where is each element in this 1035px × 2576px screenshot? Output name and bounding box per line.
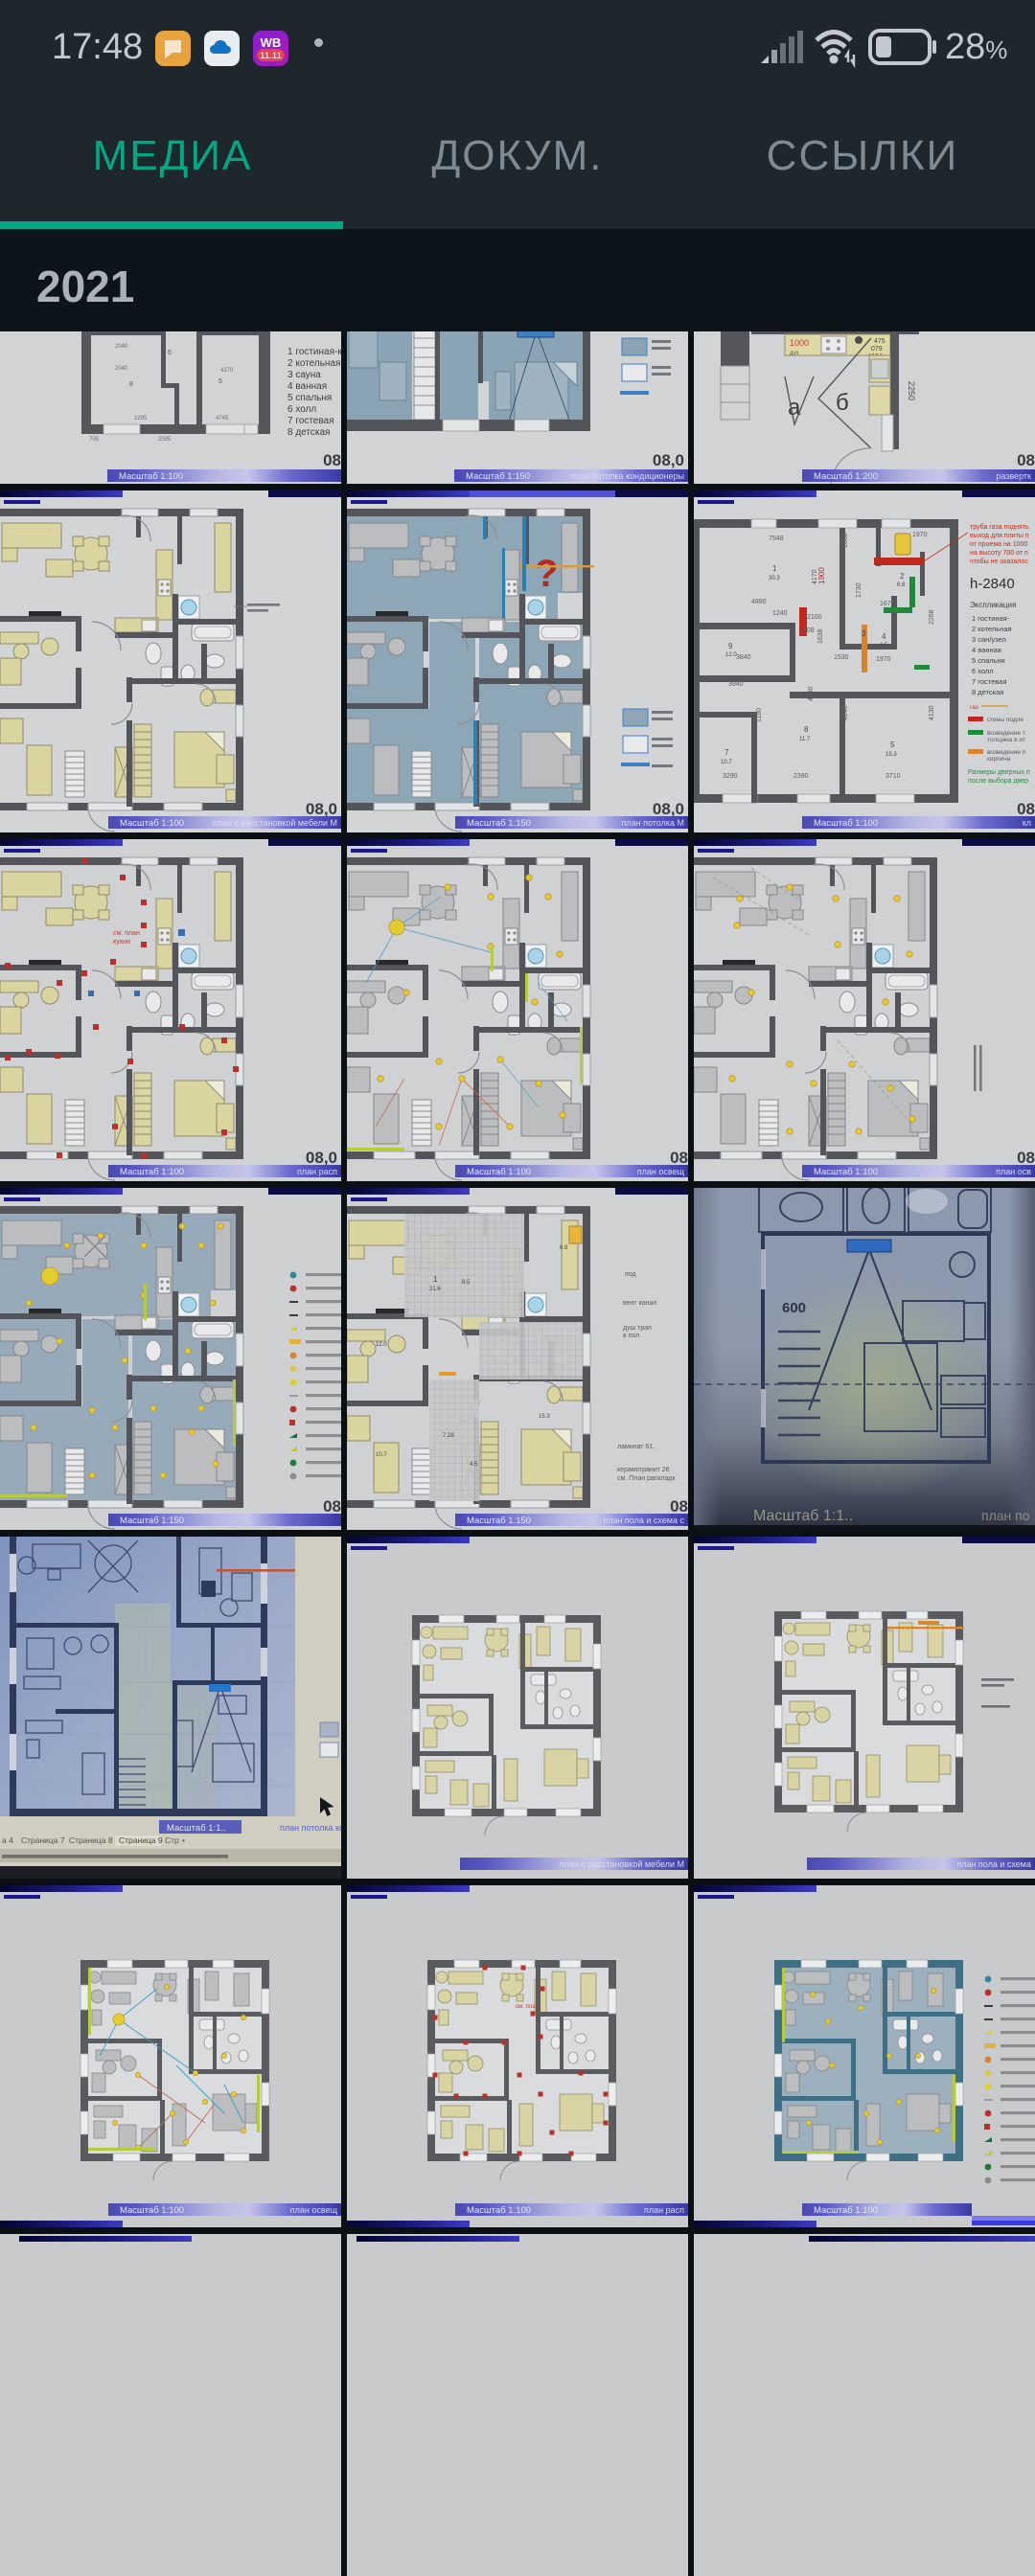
svg-text:1 гостиная-: 1 гостиная-: [972, 614, 1010, 623]
svg-text:на высоту 700 от п: на высоту 700 от п: [970, 550, 1028, 557]
svg-text:план пола и схема: план пола и схема: [956, 1859, 1031, 1869]
svg-text:30.3: 30.3: [769, 576, 780, 581]
svg-text:3290: 3290: [723, 773, 738, 780]
svg-text:а 4: а 4: [2, 1835, 13, 1845]
svg-text:h-2840: h-2840: [970, 576, 1015, 592]
svg-text:Масштаб 1:100: Масштаб 1:100: [467, 1167, 531, 1177]
svg-text:от проема на 1000: от проема на 1000: [970, 541, 1027, 548]
svg-text:08: 08: [670, 1149, 688, 1167]
svg-text:2250: 2250: [907, 381, 916, 400]
svg-text:чтобы не оказалос: чтобы не оказалос: [970, 558, 1028, 565]
svg-text:1638: 1638: [817, 628, 824, 644]
svg-text:см. План раскладк: см. План раскладк: [617, 1475, 677, 1482]
svg-text:план осв: план осв: [996, 1167, 1031, 1176]
svg-text:08: 08: [1017, 800, 1035, 818]
svg-text:Масштаб 1:100: Масштаб 1:100: [120, 1167, 184, 1177]
svg-text:11.7: 11.7: [799, 737, 811, 742]
svg-text:вент канал: вент канал: [623, 1300, 657, 1307]
svg-text:2295: 2295: [134, 416, 148, 422]
svg-text:?: ?: [535, 553, 558, 595]
svg-text:3710: 3710: [885, 773, 901, 780]
svg-text:4170: 4170: [220, 368, 234, 374]
svg-text:после выбора двер: после выбора двер: [968, 777, 1028, 785]
svg-text:2390: 2390: [793, 773, 809, 780]
svg-text:7 гостевая: 7 гостевая: [287, 416, 334, 426]
svg-text:4745: 4745: [216, 416, 229, 422]
svg-text:4 ванная: 4 ванная: [287, 381, 327, 392]
svg-text:2 котельная: 2 котельная: [972, 625, 1012, 633]
svg-text:5: 5: [890, 741, 895, 749]
svg-text:план расп: план расп: [644, 2205, 684, 2215]
svg-text:душ трап: душ трап: [623, 1325, 652, 1332]
svg-text:3 сауна: 3 сауна: [287, 370, 321, 380]
svg-text:план пола и схема с: план пола и схема с: [603, 1516, 684, 1525]
svg-text:1680: 1680: [842, 533, 849, 548]
svg-text:10.7: 10.7: [721, 760, 732, 765]
svg-text:08,0: 08,0: [653, 800, 684, 818]
svg-text:8 детская: 8 детская: [972, 688, 1003, 696]
svg-text:см. план: см. план: [516, 2004, 539, 2010]
svg-text:2268: 2268: [929, 609, 935, 625]
svg-text:Экспликация: Экспликация: [970, 601, 1016, 609]
svg-text:Масштаб 1:100: Масштаб 1:100: [120, 2205, 184, 2216]
svg-text:3 сан/узел: 3 сан/узел: [972, 635, 1006, 644]
svg-text:Страница 7: Страница 7: [21, 1835, 65, 1845]
svg-text:план с расстановкой мебели М: план с расстановкой мебели М: [213, 818, 337, 828]
svg-text:ламинат 61,: ламинат 61,: [617, 1444, 655, 1450]
svg-text:план расп: план расп: [297, 1167, 337, 1176]
svg-text:план потолка кон: план потолка кон: [280, 1823, 341, 1833]
svg-text:3840: 3840: [736, 654, 751, 661]
svg-text:газ: газ: [970, 704, 978, 711]
svg-text:3: 3: [862, 629, 866, 638]
svg-text:1900: 1900: [817, 567, 826, 584]
svg-text:1530: 1530: [834, 654, 849, 661]
svg-text:15.3: 15.3: [885, 752, 897, 758]
svg-text:1670: 1670: [880, 601, 895, 607]
svg-text:6 холл: 6 холл: [972, 667, 994, 675]
svg-text:2100: 2100: [807, 614, 822, 621]
svg-text:6.8: 6.8: [897, 582, 906, 588]
svg-text:план освещ: план освещ: [637, 1167, 685, 1176]
svg-text:1: 1: [433, 1275, 438, 1284]
svg-text:толщина в ит: толщина в ит: [987, 737, 1025, 743]
svg-text:705: 705: [89, 437, 100, 443]
svg-text:кирпича: кирпича: [987, 756, 1011, 763]
svg-text:3940: 3940: [728, 681, 744, 688]
svg-text:5: 5: [218, 378, 222, 385]
svg-text:12.0: 12.0: [376, 1342, 387, 1348]
svg-text:4.5: 4.5: [880, 643, 888, 649]
svg-text:08: 08: [323, 451, 341, 469]
svg-text:керамогранит 26: керамогранит 26: [617, 1467, 670, 1473]
svg-text:475: 475: [874, 338, 885, 345]
svg-text:выход для плиты п: выход для плиты п: [970, 533, 1029, 539]
svg-text:08: 08: [323, 1497, 341, 1516]
svg-text:8: 8: [129, 381, 133, 388]
svg-text:1 гостиная-ку: 1 гостиная-ку: [287, 347, 341, 357]
svg-text:Масштаб 1:100: Масштаб 1:100: [119, 471, 183, 482]
svg-text:стены подле: стены подле: [987, 717, 1023, 723]
svg-text:план потолка кондиционеры: план потолка кондиционеры: [570, 471, 684, 481]
svg-text:дух: дух: [790, 351, 799, 356]
svg-text:план освещ: план освещ: [290, 2205, 338, 2215]
svg-text:08,0: 08,0: [306, 1149, 337, 1167]
svg-text:4180: 4180: [808, 686, 815, 701]
svg-text:4890: 4890: [751, 599, 767, 605]
svg-text:Страница 9: Страница 9: [119, 1835, 163, 1845]
svg-text:Масштаб 1:100: Масштаб 1:100: [814, 818, 878, 829]
svg-text:9: 9: [728, 642, 733, 650]
svg-text:Масштаб 1:100: Масштаб 1:100: [120, 818, 184, 829]
svg-text:1730: 1730: [856, 582, 862, 598]
svg-text:Стр: Стр: [165, 1835, 179, 1845]
svg-text:1180: 1180: [756, 708, 763, 722]
svg-text:Масштаб 1:100: Масштаб 1:100: [814, 1167, 878, 1177]
svg-text:возведение т: возведение т: [987, 730, 1025, 737]
svg-text:4240: 4240: [842, 705, 849, 720]
svg-text:11.11: 11.11: [260, 51, 282, 61]
svg-text:4 ванная: 4 ванная: [972, 646, 1001, 654]
svg-text:1240: 1240: [772, 610, 788, 617]
svg-text:Масштаб 1:1..: Масштаб 1:1..: [753, 1508, 853, 1524]
svg-text:6 холл: 6 холл: [287, 404, 316, 415]
svg-text:5 спальня: 5 спальня: [287, 393, 332, 403]
svg-text:план по: план по: [981, 1508, 1030, 1523]
svg-text:1000: 1000: [790, 338, 809, 348]
svg-text:7: 7: [724, 748, 729, 757]
svg-text:кухни: кухни: [113, 939, 130, 946]
svg-text:08,0: 08,0: [653, 451, 684, 469]
svg-text:4: 4: [882, 632, 886, 641]
svg-text:1970: 1970: [876, 656, 891, 663]
svg-text:2040: 2040: [115, 366, 128, 372]
svg-text:8 детская: 8 детская: [287, 427, 330, 438]
svg-text:10.7: 10.7: [376, 1452, 387, 1458]
svg-text:Масштаб 1:150: Масштаб 1:150: [467, 818, 531, 829]
svg-text:08: 08: [1017, 1149, 1035, 1167]
svg-text:08,0: 08,0: [306, 800, 337, 818]
svg-text:2908: 2908: [799, 627, 815, 634]
svg-text:Масштаб 1:150: Масштаб 1:150: [467, 1516, 531, 1526]
svg-text:под: под: [625, 1271, 636, 1278]
svg-text:план потолка М: план потолка М: [621, 818, 684, 828]
svg-text:б: б: [836, 390, 849, 416]
svg-text:08: 08: [670, 1497, 688, 1516]
svg-text:план с расстановкой мебели М: план с расстановкой мебели М: [560, 1859, 684, 1869]
svg-text:труба газа поднять: труба газа поднять: [970, 523, 1029, 531]
svg-text:4130: 4130: [929, 705, 935, 720]
svg-text:4170: 4170: [812, 569, 818, 584]
svg-text:7.28: 7.28: [443, 1433, 454, 1439]
svg-text:6: 6: [168, 350, 172, 356]
svg-text:Масштаб 1:150: Масштаб 1:150: [120, 1516, 184, 1526]
svg-text:кл: кл: [1023, 818, 1031, 828]
svg-text:2: 2: [900, 572, 905, 581]
svg-text:развертк: развертк: [996, 471, 1031, 481]
svg-text:возведение п: возведение п: [987, 749, 1026, 756]
svg-text:21.6: 21.6: [429, 1287, 441, 1292]
svg-text:2040: 2040: [115, 344, 128, 350]
svg-text:Размеры дверных п: Размеры дверных п: [968, 769, 1030, 776]
svg-text:Масштаб 1:1..: Масштаб 1:1..: [167, 1823, 226, 1834]
svg-text:2595: 2595: [158, 437, 172, 443]
svg-text:Масштаб 1:150: Масштаб 1:150: [466, 471, 530, 482]
svg-text:2 котельная: 2 котельная: [287, 358, 340, 369]
svg-text:8: 8: [804, 725, 809, 734]
svg-text:в пол: в пол: [623, 1333, 639, 1339]
svg-text:6.8: 6.8: [560, 1245, 568, 1251]
svg-text:8.5: 8.5: [462, 1280, 471, 1286]
svg-text:•: •: [182, 1835, 185, 1845]
svg-text:Масштаб 1:100: Масштаб 1:100: [814, 2205, 878, 2216]
svg-text:WB: WB: [261, 35, 282, 50]
svg-text:Страница 8: Страница 8: [69, 1835, 113, 1845]
svg-text:Масштаб 1:100: Масштаб 1:100: [467, 2205, 531, 2216]
svg-text:15.3: 15.3: [539, 1414, 550, 1420]
svg-text:08: 08: [1017, 451, 1035, 469]
svg-text:Масштаб 1:200: Масштаб 1:200: [814, 471, 878, 482]
svg-text:5 спальня: 5 спальня: [972, 656, 1005, 665]
svg-text:7548: 7548: [769, 536, 784, 542]
svg-text:079: 079: [871, 346, 883, 353]
svg-text:12.0: 12.0: [725, 652, 737, 658]
svg-text:600: 600: [782, 1300, 806, 1316]
svg-text:см. план: см. план: [113, 930, 140, 937]
svg-text:7 гостевая: 7 гостевая: [972, 677, 1006, 686]
svg-text:1970: 1970: [912, 532, 928, 538]
svg-text:1: 1: [772, 564, 777, 573]
svg-text:4.5: 4.5: [470, 1462, 478, 1468]
